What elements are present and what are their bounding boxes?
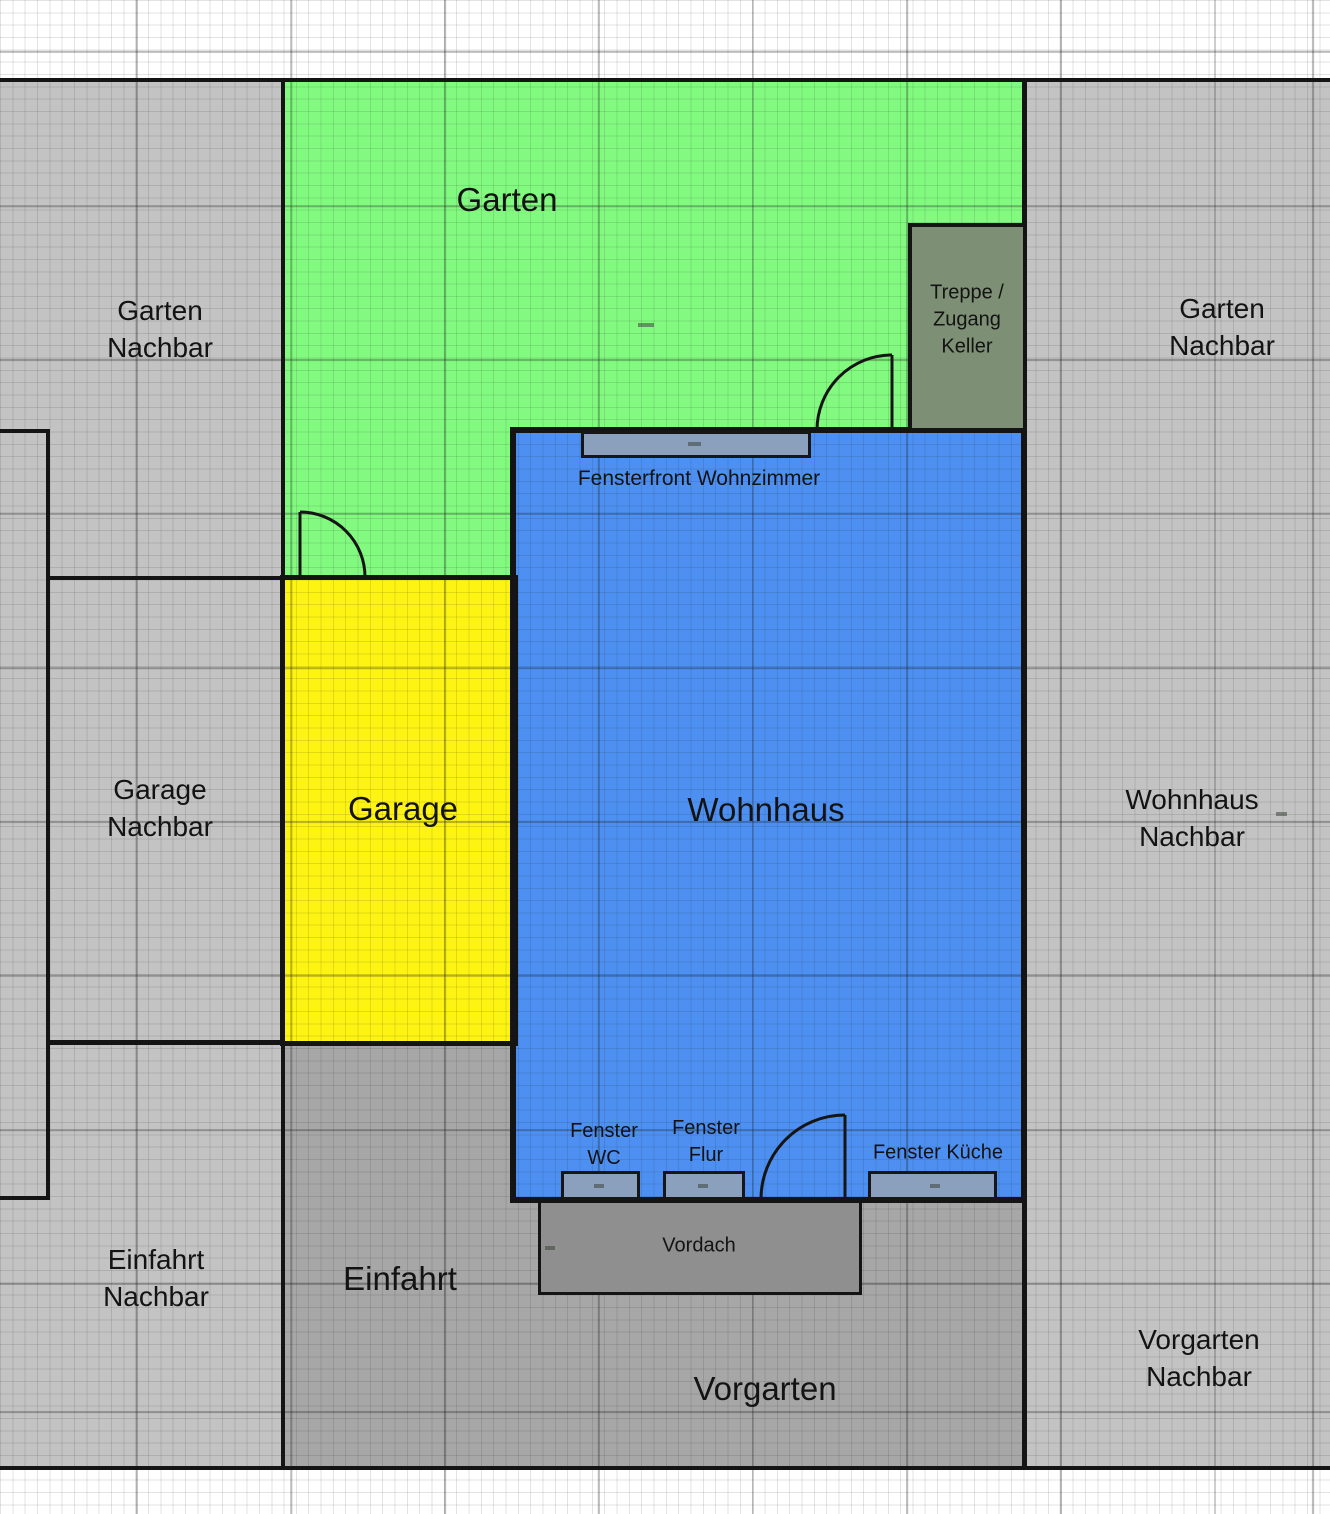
micro-mark <box>688 442 701 446</box>
micro-mark <box>930 1184 940 1188</box>
label-line: Einfahrt <box>103 1241 209 1278</box>
fenster-wc-label: Fenster WC <box>570 1118 638 1172</box>
fenster-flur-label: Fenster Flur <box>672 1115 740 1169</box>
label-line: Garage <box>107 771 213 808</box>
micro-mark <box>638 323 654 327</box>
site-plan: Garten Garage Wohnhaus Einfahrt Vorgarte… <box>0 0 1330 1514</box>
treppe-keller-label: Treppe / Zugang Keller <box>930 280 1004 361</box>
label-line: Flur <box>672 1142 740 1169</box>
einfahrt-label: Einfahrt <box>343 1260 457 1298</box>
micro-mark <box>594 1184 604 1188</box>
garten-label: Garten <box>457 181 558 219</box>
label-line: Wohnhaus <box>1125 781 1258 818</box>
garage-nachbar-label: Garage Nachbar <box>107 771 213 845</box>
label-line: Garten <box>1169 290 1275 327</box>
boundary-garage-top-ext <box>46 576 285 580</box>
vordach-label: Vordach <box>662 1233 735 1260</box>
label-line: Nachbar <box>107 329 213 366</box>
label-line: Nachbar <box>1169 327 1275 364</box>
neighbor-area-right <box>1025 80 1330 1469</box>
label-line: Keller <box>930 334 1004 361</box>
boundary-notch-top <box>0 429 50 433</box>
label-line: Fenster <box>570 1118 638 1145</box>
einfahrt-area <box>283 1042 513 1469</box>
wohnhaus-nachbar-label: Wohnhaus Nachbar <box>1125 781 1258 855</box>
garage-label: Garage <box>348 790 458 828</box>
label-line: Nachbar <box>1125 818 1258 855</box>
boundary-bottom <box>0 1466 1330 1470</box>
fensterfront-wohnzimmer-label: Fensterfront Wohnzimmer <box>578 467 820 491</box>
boundary-notch-bottom <box>0 1196 50 1200</box>
micro-mark <box>545 1246 555 1250</box>
vorgarten-nachbar-label: Vorgarten Nachbar <box>1138 1321 1259 1395</box>
label-line: Fenster <box>672 1115 740 1142</box>
micro-mark <box>1276 812 1287 816</box>
fenster-kueche-label: Fenster Küche <box>873 1140 1003 1167</box>
wohnhaus-label: Wohnhaus <box>687 791 844 829</box>
garten-nachbar-left-label: Garten Nachbar <box>107 292 213 366</box>
boundary-notch-vertical <box>46 429 50 1200</box>
label-line: Nachbar <box>103 1278 209 1315</box>
label-line: Nachbar <box>1138 1358 1259 1395</box>
label-line: Garten <box>107 292 213 329</box>
label-line: Nachbar <box>107 808 213 845</box>
micro-mark <box>698 1184 708 1188</box>
garten-nachbar-right-label: Garten Nachbar <box>1169 290 1275 364</box>
label-line: WC <box>570 1145 638 1172</box>
boundary-garage-bottom-ext <box>46 1040 285 1045</box>
label-line: Treppe / <box>930 280 1004 307</box>
label-line: Zugang <box>930 307 1004 334</box>
label-line: Vorgarten <box>1138 1321 1259 1358</box>
einfahrt-nachbar-label: Einfahrt Nachbar <box>103 1241 209 1315</box>
boundary-top <box>0 78 1330 82</box>
vorgarten-label: Vorgarten <box>693 1370 836 1408</box>
